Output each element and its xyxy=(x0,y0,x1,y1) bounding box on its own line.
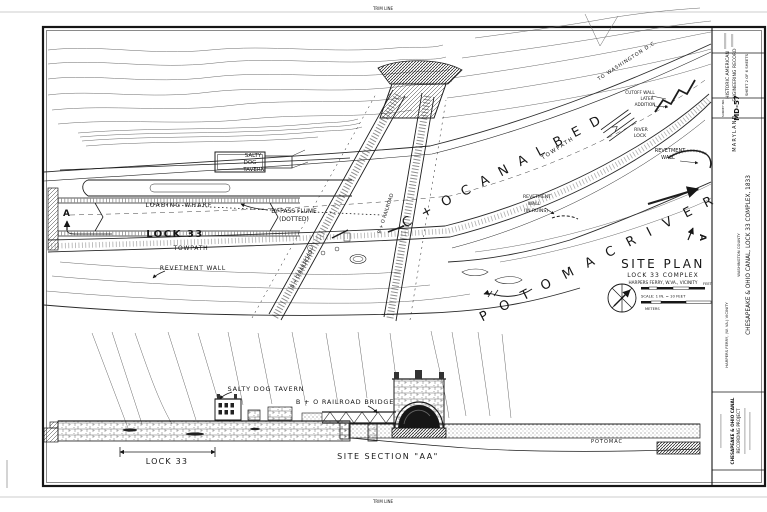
label-canal-bed: C + O C A N A L B E D xyxy=(400,112,607,232)
strip-record-2: ENGINEERING RECORD xyxy=(732,48,738,102)
strip-main-title: CHESAPEAKE & OHIO CANAL, LOCK 33 COMPLEX… xyxy=(746,175,752,335)
scale-note: SCALE: 1 IN. = 10 FEET xyxy=(641,294,686,299)
strip-smalltext-mark xyxy=(724,33,726,49)
plan-vicinity: HARPERS FERRY, W.VA., VICINITY xyxy=(629,280,698,285)
scale-meters-label: METERS xyxy=(645,307,660,311)
label-section-title: SITE SECTION "AA" xyxy=(337,452,439,461)
label-ruins-3: (IN RUINS) xyxy=(524,208,548,214)
label-loading-wharf: LOADING WHARF xyxy=(145,202,212,209)
plan-subtitle: LOCK 33 COMPLEX xyxy=(627,272,698,279)
label-bypass-flume-2: (DOTTED) xyxy=(279,216,309,223)
section-marker-a-left: A xyxy=(63,209,70,219)
strip-state: MARYLAND xyxy=(732,114,738,151)
plan-title: SITE PLAN xyxy=(621,257,705,271)
label-revetment-right-2: WALL xyxy=(661,155,675,161)
strip-project-mark-3 xyxy=(749,412,751,450)
label-salty-3: TAVERN xyxy=(242,167,265,173)
strip-county: WASHINGTON COUNTY xyxy=(736,233,741,277)
scale-bars: FEET SCALE: 1 IN. = 10 FEET METERS xyxy=(641,282,713,311)
label-ruins-1: REVETMENT xyxy=(523,194,551,200)
label-section-lock33: LOCK 33 xyxy=(146,457,188,466)
strip-project-1: CHESAPEAKE & OHIO CANAL xyxy=(730,397,735,464)
label-ruins-2: WALL xyxy=(528,201,541,207)
label-river-lock-1: RIVER xyxy=(634,127,649,133)
label-section-potomac: POTOMAC xyxy=(591,439,623,445)
strip-project-mark-1 xyxy=(720,414,722,448)
trim-label-top: TRIM LINE xyxy=(372,6,394,11)
label-bypass-flume-1: BY-PASS FLUME xyxy=(271,208,317,215)
strip-vicinity: HARPERS FERRY, (W. VA.) VICINITY xyxy=(724,302,729,368)
label-lock33-plan: LOCK 33 xyxy=(146,229,204,240)
strip-project-mark-2 xyxy=(744,408,746,454)
label-section-tavern: SALTY DOG TAVERN xyxy=(228,385,305,393)
label-revetment-right-1: REVETMENT xyxy=(655,148,686,154)
strip-sheet-no: SHEET 2 OF 6 SHEETS xyxy=(744,53,749,96)
title-strip: HISTORIC AMERICAN ENGINEERING RECORD SHE… xyxy=(712,33,765,470)
label-revetment-left: REVETMENT WALL xyxy=(160,265,226,272)
label-cutoff-3: ADDITION xyxy=(635,102,656,107)
plan-titleblock: SITE PLAN LOCK 33 COMPLEX HARPERS FERRY,… xyxy=(608,257,713,312)
strip-record-1: HISTORIC AMERICAN xyxy=(725,51,731,99)
label-towpath-left: TOWPATH xyxy=(173,245,209,252)
label-salty-2: DOG xyxy=(244,160,257,166)
trim-label-bottom: TRIM LINE xyxy=(372,499,394,504)
margin-note-mark xyxy=(6,460,8,488)
plan-railroad xyxy=(252,61,462,321)
label-river-lock-2: LOCK xyxy=(634,133,647,139)
label-cutoff-2: LATER xyxy=(640,96,653,101)
scale-feet-label: FEET xyxy=(703,282,713,286)
label-cutoff-1: CUTOFF WALL xyxy=(625,90,655,95)
label-salty-1: SALTY xyxy=(245,153,262,159)
section-marker-a-right: A xyxy=(697,234,707,241)
strip-project-2: RECORDING PROJECT xyxy=(736,408,741,453)
label-section-bridge: B + O RAILROAD BRIDGE xyxy=(296,398,394,406)
compass-rose xyxy=(608,284,636,312)
label-to-washington: TO WASHINGTON D.C. xyxy=(596,39,659,83)
haer-drawing-sheet: TRIM LINE TRIM LINE xyxy=(0,0,767,512)
section-cliffs xyxy=(92,331,511,428)
label-bo-railroad-right: B + O RAILROAD xyxy=(377,193,396,235)
drawing-canvas: TRIM LINE TRIM LINE xyxy=(0,0,767,512)
strip-smalltext-mark2 xyxy=(731,34,733,47)
strip-survey-label: SURVEY NO. xyxy=(721,99,725,117)
